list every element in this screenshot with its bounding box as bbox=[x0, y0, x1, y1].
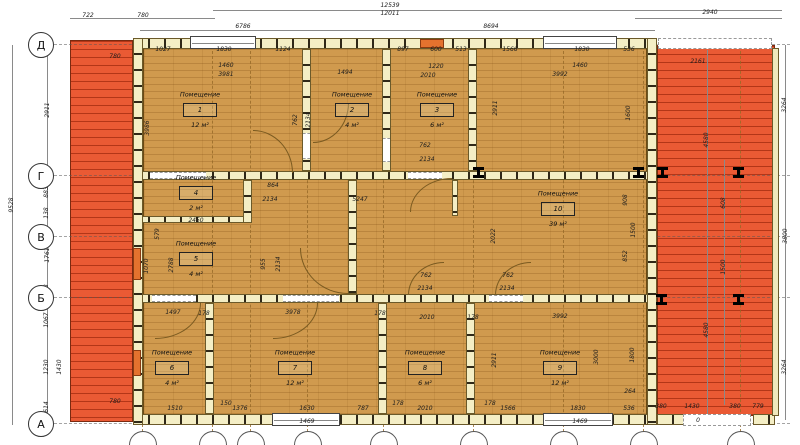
dimension-text: 3986 bbox=[145, 120, 151, 135]
dimension-text: 762 bbox=[502, 273, 513, 279]
dimension-text: 178 bbox=[198, 311, 209, 317]
dimension-text: 600 bbox=[430, 47, 441, 53]
dimension-text: 2010 bbox=[420, 73, 435, 79]
room-area: 12 м² bbox=[551, 379, 569, 387]
dimension-text: 9528 bbox=[9, 197, 15, 212]
dimension-text: 4580 bbox=[704, 132, 710, 147]
dimension-text: 779 bbox=[752, 404, 763, 410]
dimension-text: 3981 bbox=[218, 72, 233, 78]
room-label: Помещение bbox=[405, 350, 445, 357]
dimension-text: 2134 bbox=[276, 256, 282, 271]
room-number: 7 bbox=[278, 361, 312, 375]
dimension-text: 5247 bbox=[352, 197, 367, 203]
dimension-text: 12539 bbox=[380, 3, 399, 9]
dimension-text: 2134 bbox=[417, 286, 432, 292]
dimension-text: 1460 bbox=[572, 63, 587, 69]
dimension-text: 762 bbox=[420, 273, 431, 279]
dimension-text: 1469 bbox=[299, 419, 314, 425]
dimension-text: 3800 bbox=[783, 228, 789, 243]
wall-opening bbox=[152, 295, 196, 302]
dimension-text: 12011 bbox=[380, 11, 399, 17]
dimension-text: 1469 bbox=[572, 419, 587, 425]
dimension-text: 897 bbox=[397, 47, 408, 53]
dimension-text: 2134 bbox=[499, 286, 514, 292]
axis-bubble-column bbox=[199, 431, 227, 445]
building-floor bbox=[143, 48, 647, 415]
drawing-area: Помещение112 м²Помещение24 м²Помещение36… bbox=[0, 0, 800, 445]
dimension-text: 864 bbox=[267, 183, 278, 189]
dimension-text: 1494 bbox=[337, 70, 352, 76]
axis-bubble-column bbox=[237, 431, 265, 445]
dimension-text: 178 bbox=[392, 401, 403, 407]
room-number: 3 bbox=[420, 103, 454, 117]
door-marker bbox=[133, 248, 141, 280]
wall bbox=[133, 294, 657, 303]
dimension-text: 908 bbox=[623, 194, 629, 205]
axis-bubble-В: В bbox=[28, 224, 54, 250]
wall bbox=[647, 38, 657, 425]
dimension-text: 4580 bbox=[704, 322, 710, 337]
dimension-text: 8694 bbox=[483, 24, 498, 30]
axis-grid-line bbox=[643, 46, 644, 432]
dimension-text: 150 bbox=[220, 401, 231, 407]
i-beam-column-symbol bbox=[473, 167, 484, 178]
dimension-text: 2161 bbox=[690, 59, 705, 65]
i-beam-column-symbol bbox=[656, 294, 667, 305]
dimension-text: 1566 bbox=[500, 406, 515, 412]
room-number: 6 bbox=[155, 361, 189, 375]
room-number: 5 bbox=[179, 252, 213, 266]
room-area: 4 м² bbox=[345, 121, 359, 129]
dimension-text: 1376 bbox=[232, 406, 247, 412]
room-number: 8 bbox=[408, 361, 442, 375]
dimension-text: 1566 bbox=[502, 47, 517, 53]
dimension-text: 955 bbox=[261, 258, 267, 269]
room-label: Помещение bbox=[275, 350, 315, 357]
dimension-line bbox=[140, 30, 655, 31]
wall-opening bbox=[383, 138, 390, 162]
dimension-text: 1830 bbox=[574, 47, 589, 53]
dimension-text: 178 bbox=[467, 315, 478, 321]
room-number: 10 bbox=[541, 202, 575, 216]
wall bbox=[452, 180, 458, 216]
wall bbox=[378, 303, 387, 414]
room-area: 6 м² bbox=[430, 121, 444, 129]
dimension-line bbox=[12, 45, 13, 425]
dimension-text: 536 bbox=[623, 406, 634, 412]
dimension-text: 536 bbox=[623, 47, 634, 53]
wall bbox=[657, 414, 685, 425]
open-edge bbox=[658, 38, 772, 49]
dimension-text: 2788 bbox=[169, 257, 175, 272]
wall-opening bbox=[408, 172, 442, 179]
wall-strip bbox=[772, 48, 779, 416]
room-label: Помещение bbox=[180, 92, 220, 99]
dimension-text: 380 bbox=[729, 404, 740, 410]
dimension-text: 1220 bbox=[428, 64, 443, 70]
door-marker bbox=[133, 350, 141, 376]
dimension-text: 1067 bbox=[44, 312, 50, 327]
dimension-text: 2911 bbox=[493, 100, 499, 115]
dimension-text: 380 bbox=[655, 404, 666, 410]
dimension-text: 1070 bbox=[144, 258, 150, 273]
room-area: 2 м² bbox=[189, 204, 203, 212]
dimension-text: 3264 bbox=[782, 359, 788, 374]
dimension-text: 1460 bbox=[218, 63, 233, 69]
dimension-text: 1830 bbox=[216, 47, 231, 53]
room-number: 1 bbox=[183, 103, 217, 117]
dimension-text: 1600 bbox=[626, 105, 632, 120]
wall bbox=[205, 303, 214, 414]
axis-bubble-А: А bbox=[28, 411, 54, 437]
dimension-text: 1430 bbox=[57, 359, 63, 374]
dimension-text: 1500 bbox=[721, 259, 727, 274]
dimension-line bbox=[213, 10, 782, 11]
dimension-text: 2134 bbox=[262, 197, 277, 203]
wall-opening bbox=[283, 295, 339, 302]
i-beam-column-symbol bbox=[633, 167, 644, 178]
room-number: 9 bbox=[543, 361, 577, 375]
room-label: Помещение bbox=[332, 92, 372, 99]
dimension-text: 1500 bbox=[631, 222, 637, 237]
axis-bubble-column bbox=[630, 431, 658, 445]
i-beam-column-symbol bbox=[733, 294, 744, 305]
dimension-text: 3992 bbox=[552, 72, 567, 78]
dimension-text: 6786 bbox=[235, 24, 250, 30]
dimension-text: 1027 bbox=[155, 47, 170, 53]
dimension-text: 1830 bbox=[570, 406, 585, 412]
axis-grid-line bbox=[250, 46, 251, 432]
room-label: Помещение bbox=[538, 191, 578, 198]
dimension-text: 2022 bbox=[491, 228, 497, 243]
dimension-text: 1430 bbox=[684, 404, 699, 410]
dimension-text: 780 bbox=[137, 13, 148, 19]
dimension-text: 1510 bbox=[167, 406, 182, 412]
dimension-line bbox=[635, 18, 782, 19]
wall-opening bbox=[303, 133, 310, 159]
dimension-text: 1124 bbox=[275, 47, 290, 53]
dimension-text: 0 bbox=[696, 418, 700, 424]
dimension-text: 2134 bbox=[419, 157, 434, 163]
dimension-text: 787 bbox=[357, 406, 368, 412]
dimension-text: 1800 bbox=[630, 347, 636, 362]
room-number: 4 bbox=[179, 186, 213, 200]
dimension-text: 1761 bbox=[45, 247, 51, 262]
dimension-text: 2911 bbox=[492, 352, 498, 367]
dimension-text: 2010 bbox=[419, 315, 434, 321]
terrace-right bbox=[657, 45, 775, 416]
axis-bubble-Г: Г bbox=[28, 163, 54, 189]
axis-bubble-column bbox=[294, 431, 322, 445]
terrace-left bbox=[70, 40, 133, 422]
dimension-text: 780 bbox=[109, 54, 120, 60]
dimension-text: 3992 bbox=[552, 314, 567, 320]
dimension-text: 138 bbox=[44, 207, 50, 218]
axis-bubble-column bbox=[727, 431, 755, 445]
dimension-text: 178 bbox=[374, 311, 385, 317]
dimension-text: 1230 bbox=[44, 359, 50, 374]
axis-bubble-Б: Б bbox=[28, 285, 54, 311]
dimension-text: 3000 bbox=[594, 349, 600, 364]
axis-grid-line bbox=[740, 46, 741, 432]
dimension-text: 3978 bbox=[285, 310, 300, 316]
dimension-text: 2010 bbox=[417, 406, 432, 412]
dimension-text: 722 bbox=[82, 13, 93, 19]
dimension-text: 264 bbox=[624, 389, 635, 395]
i-beam-column-symbol bbox=[657, 167, 668, 178]
room-area: 12 м² bbox=[191, 121, 209, 129]
dimension-text: 1630 bbox=[299, 406, 314, 412]
dimension-text: 780 bbox=[109, 399, 120, 405]
axis-bubble-column bbox=[370, 431, 398, 445]
dimension-text: 513 bbox=[455, 47, 466, 53]
dimension-line bbox=[707, 50, 708, 415]
room-label: Помещение bbox=[417, 92, 457, 99]
room-label: Помещение bbox=[176, 175, 216, 182]
dimension-text: 608 bbox=[721, 197, 727, 208]
axis-bubble-column bbox=[550, 431, 578, 445]
wall-opening bbox=[489, 295, 523, 302]
floor-plan: Помещение112 м²Помещение24 м²Помещение36… bbox=[0, 0, 800, 445]
dimension-text: 2134 bbox=[306, 112, 312, 127]
dimension-text: 2940 bbox=[702, 10, 717, 16]
axis-bubble-column bbox=[129, 431, 157, 445]
room-area: 39 м² bbox=[549, 220, 567, 228]
open-edge bbox=[683, 414, 751, 426]
wall bbox=[243, 180, 252, 223]
room-area: 6 м² bbox=[418, 379, 432, 387]
room-area: 12 м² bbox=[286, 379, 304, 387]
dimension-text: 762 bbox=[293, 114, 299, 125]
dimension-text: 2911 bbox=[45, 102, 51, 117]
room-label: Помещение bbox=[540, 350, 580, 357]
dimension-text: 579 bbox=[155, 228, 161, 239]
dimension-text: 762 bbox=[419, 143, 430, 149]
dimension-text: 3264 bbox=[782, 97, 788, 112]
dimension-text: 2450 bbox=[188, 218, 203, 224]
dimension-text: 852 bbox=[623, 250, 629, 261]
axis-bubble-Д: Д bbox=[28, 32, 54, 58]
axis-bubble-column bbox=[460, 431, 488, 445]
room-label: Помещение bbox=[152, 350, 192, 357]
dimension-text: 178 bbox=[484, 401, 495, 407]
room-label: Помещение bbox=[176, 241, 216, 248]
i-beam-column-symbol bbox=[733, 167, 744, 178]
dimension-text: 1497 bbox=[165, 310, 180, 316]
room-area: 4 м² bbox=[189, 270, 203, 278]
room-area: 4 м² bbox=[165, 379, 179, 387]
room-number: 2 bbox=[335, 103, 369, 117]
wall bbox=[468, 49, 477, 171]
